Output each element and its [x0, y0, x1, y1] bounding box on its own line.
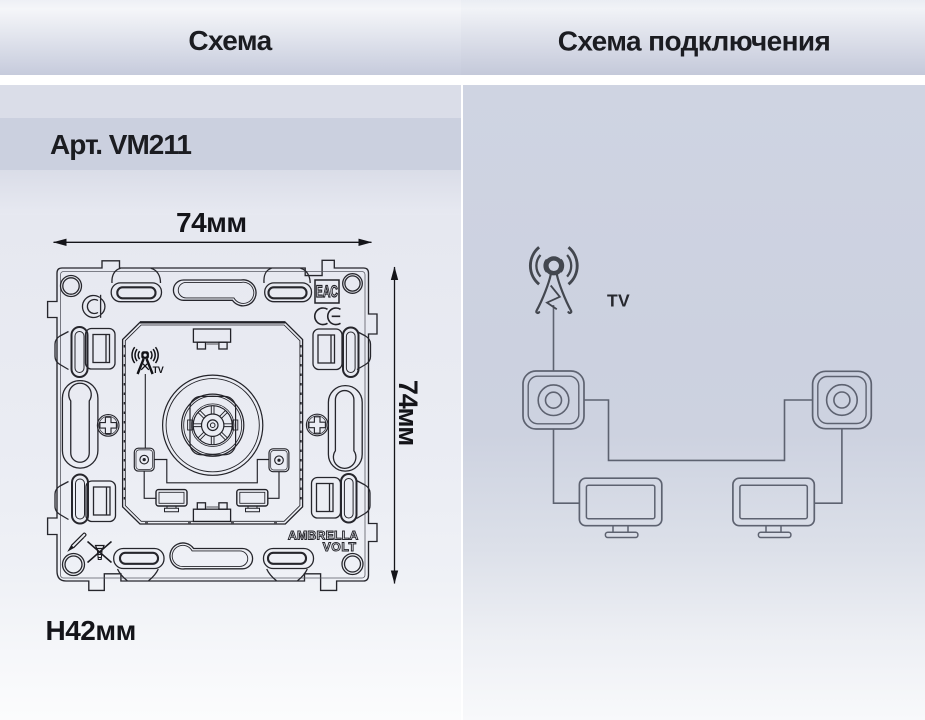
- svg-text:Схема подключения: Схема подключения: [558, 26, 831, 57]
- svg-text:Схема: Схема: [188, 25, 272, 56]
- svg-text:H42мм: H42мм: [46, 615, 136, 646]
- svg-text:74мм: 74мм: [393, 380, 423, 445]
- svg-text:VOLT: VOLT: [323, 540, 357, 554]
- svg-text:ЕАС: ЕАС: [316, 282, 338, 300]
- svg-text:74мм: 74мм: [176, 207, 247, 238]
- svg-text:TV: TV: [607, 291, 630, 311]
- svg-text:Арт. VM211: Арт. VM211: [50, 129, 191, 160]
- svg-text:TV: TV: [153, 365, 164, 375]
